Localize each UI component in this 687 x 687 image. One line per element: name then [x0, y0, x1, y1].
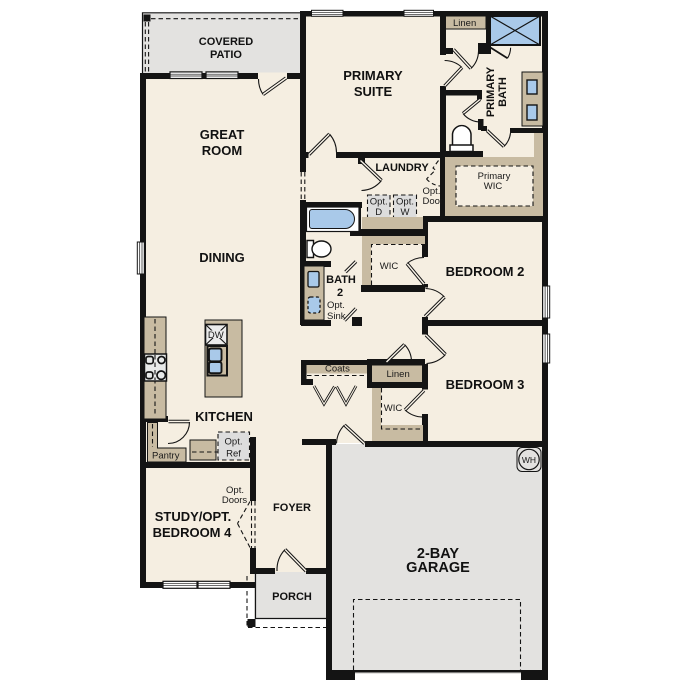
svg-text:BEDROOM 4: BEDROOM 4 [153, 525, 233, 540]
svg-text:Linen: Linen [387, 369, 410, 380]
svg-text:WH: WH [522, 455, 536, 465]
svg-text:PORCH: PORCH [272, 591, 312, 603]
svg-text:Pantry: Pantry [152, 451, 180, 462]
svg-text:BATH: BATH [497, 77, 509, 107]
svg-text:Doors: Doors [222, 495, 248, 506]
svg-text:GREAT: GREAT [200, 127, 245, 142]
svg-text:W: W [401, 207, 410, 218]
svg-text:Opt.: Opt. [396, 197, 414, 208]
svg-text:BATH: BATH [326, 274, 356, 286]
svg-text:Linen: Linen [453, 18, 476, 29]
svg-text:GARAGE: GARAGE [406, 560, 470, 576]
svg-text:Opt.: Opt. [370, 197, 388, 208]
svg-text:PATIO: PATIO [210, 49, 242, 61]
svg-text:2: 2 [337, 287, 343, 299]
svg-text:SUITE: SUITE [354, 84, 393, 99]
svg-text:BEDROOM 2: BEDROOM 2 [446, 264, 525, 279]
svg-text:FOYER: FOYER [273, 502, 311, 514]
svg-text:WIC: WIC [484, 181, 503, 192]
svg-text:PRIMARY: PRIMARY [343, 68, 403, 83]
svg-text:LAUNDRY: LAUNDRY [375, 162, 429, 174]
svg-text:DW: DW [208, 330, 224, 341]
svg-text:KITCHEN: KITCHEN [195, 409, 253, 424]
svg-text:STUDY/OPT.: STUDY/OPT. [155, 509, 232, 524]
svg-text:DINING: DINING [199, 250, 245, 265]
svg-text:ROOM: ROOM [202, 143, 242, 158]
svg-text:PRIMARY: PRIMARY [485, 66, 497, 117]
svg-text:WIC: WIC [384, 403, 403, 414]
svg-text:COVERED: COVERED [199, 36, 253, 48]
svg-text:Sink: Sink [327, 311, 346, 322]
svg-text:BEDROOM 3: BEDROOM 3 [446, 377, 525, 392]
svg-text:WIC: WIC [380, 261, 399, 272]
svg-text:Ref: Ref [226, 449, 241, 460]
svg-text:D: D [375, 207, 382, 218]
svg-text:Door: Door [423, 196, 444, 207]
svg-text:Opt.: Opt. [225, 437, 243, 448]
svg-text:Opt.: Opt. [327, 300, 345, 311]
svg-text:Coats: Coats [325, 364, 350, 375]
